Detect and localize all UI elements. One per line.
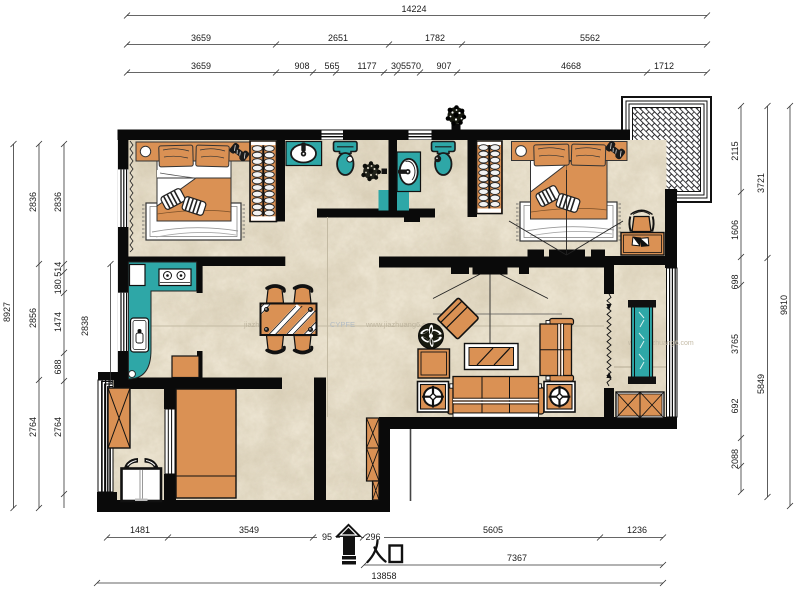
svg-text:8927: 8927 (2, 302, 12, 322)
svg-text:1474: 1474 (53, 312, 63, 332)
svg-text:2088: 2088 (730, 449, 740, 469)
svg-text:5562: 5562 (580, 33, 600, 43)
svg-text:4668: 4668 (561, 61, 581, 71)
svg-text:688: 688 (53, 359, 63, 374)
svg-text:2836: 2836 (28, 192, 38, 212)
svg-text:3765: 3765 (730, 334, 740, 354)
svg-text:2764: 2764 (28, 417, 38, 437)
svg-text:14224: 14224 (401, 4, 426, 14)
svg-text:2838: 2838 (80, 316, 90, 336)
svg-text:565: 565 (324, 61, 339, 71)
svg-text:698: 698 (730, 274, 740, 289)
svg-text:2836: 2836 (53, 192, 63, 212)
svg-text:2651: 2651 (328, 33, 348, 43)
svg-text:1481: 1481 (130, 525, 150, 535)
svg-text:907: 907 (436, 61, 451, 71)
svg-text:3721: 3721 (756, 173, 766, 193)
svg-text:908: 908 (294, 61, 309, 71)
svg-text:95: 95 (322, 532, 332, 542)
svg-text:1782: 1782 (425, 33, 445, 43)
svg-text:1236: 1236 (627, 525, 647, 535)
svg-text:305570: 305570 (391, 61, 421, 71)
svg-text:3659: 3659 (191, 33, 211, 43)
svg-text:1606: 1606 (730, 220, 740, 240)
svg-text:CYPFE: CYPFE (330, 320, 355, 329)
svg-text:3659: 3659 (191, 61, 211, 71)
svg-text:2764: 2764 (53, 417, 63, 437)
svg-text:13858: 13858 (371, 571, 396, 581)
svg-text:180.514: 180.514 (53, 262, 63, 295)
svg-text:692: 692 (730, 398, 740, 413)
svg-text:1177: 1177 (357, 61, 376, 71)
svg-text:7367: 7367 (507, 553, 527, 563)
svg-text:9810: 9810 (779, 295, 789, 315)
svg-text:2115: 2115 (730, 141, 740, 160)
svg-text:5605: 5605 (483, 525, 503, 535)
svg-text:3549: 3549 (239, 525, 259, 535)
svg-text:1712: 1712 (654, 61, 674, 71)
svg-text:2856: 2856 (28, 308, 38, 328)
svg-text:5849: 5849 (756, 374, 766, 394)
